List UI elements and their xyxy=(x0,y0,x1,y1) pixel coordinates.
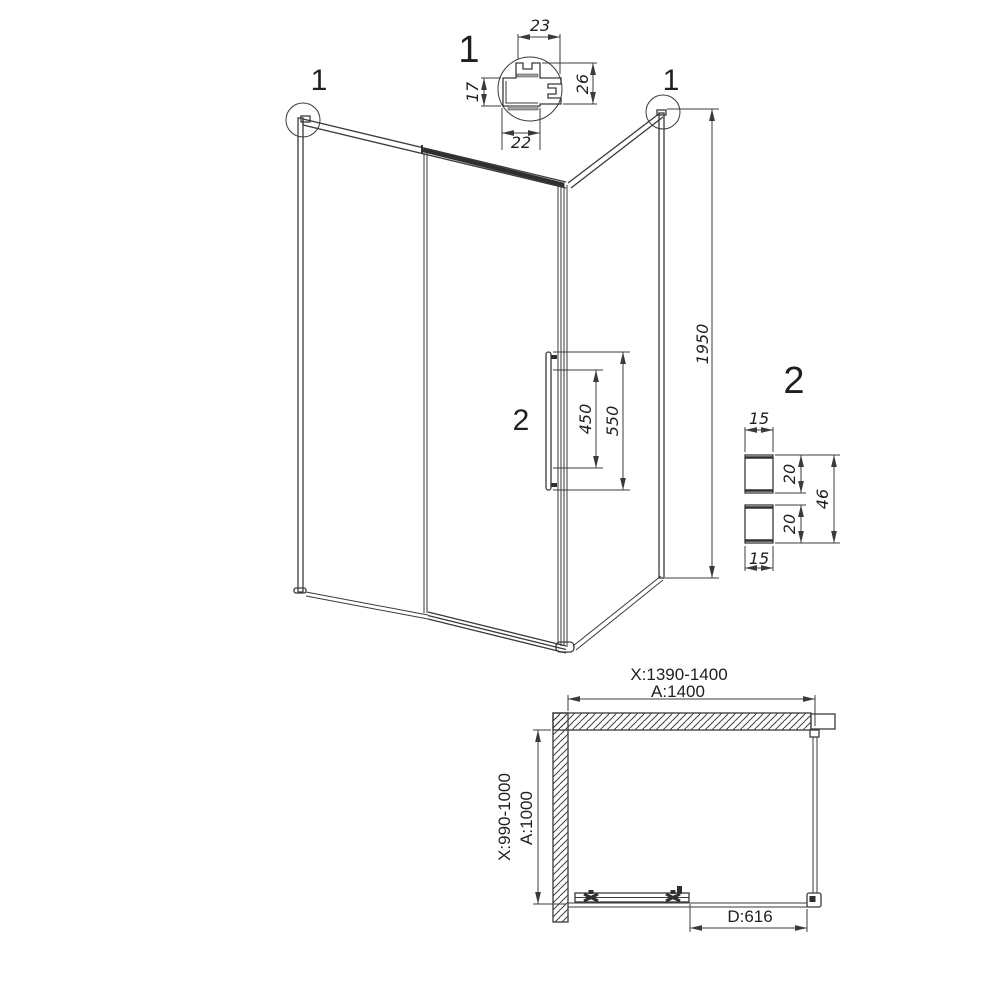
side-panel-top-rail xyxy=(568,113,663,188)
right-post xyxy=(659,113,664,578)
lower-wall-profile xyxy=(745,505,773,543)
fixed-panel-bottom-rail xyxy=(306,592,428,619)
left-wall xyxy=(553,713,568,922)
dimension-46: 46 xyxy=(813,455,834,543)
dimension-20-lower: 20 xyxy=(775,505,840,543)
dim-17-label: 17 xyxy=(463,81,482,102)
corner-connector xyxy=(807,893,821,907)
plan-depth-label: A:1000 xyxy=(517,791,536,845)
dimension-15-top: 15 xyxy=(745,409,773,452)
callout-label-handle: 2 xyxy=(513,404,530,437)
dimension-door-opening: D:616 xyxy=(690,904,807,932)
handle-mount-top xyxy=(551,355,557,359)
shower-enclosure-drawing: 1 1 2 450 550 1950 1 23 xyxy=(0,0,1000,1000)
dimension-20-upper: 20 xyxy=(775,455,840,493)
lower-profile-flanges xyxy=(745,508,773,541)
dim-1950-label: 1950 xyxy=(693,324,712,365)
detail1-callout: 1 xyxy=(458,29,479,71)
dim-46-label: 46 xyxy=(813,489,832,509)
upper-wall-profile xyxy=(745,455,773,493)
dim-550-label: 550 xyxy=(603,406,622,437)
callout-label-left: 1 xyxy=(311,64,328,97)
dimension-22: 22 xyxy=(502,108,540,152)
dim-450-label: 450 xyxy=(576,404,595,435)
plan-view: X:1390-1400 A:1400 X:990-1000 A:1000 D:6… xyxy=(495,665,835,932)
dim-15-bottom-label: 15 xyxy=(749,549,769,568)
handle-mount-bottom xyxy=(551,483,557,487)
plan-handle-knob xyxy=(677,886,682,894)
dimension-23: 23 xyxy=(518,16,560,74)
profile-inner-wall xyxy=(506,81,538,103)
side-panel-bottom-rail xyxy=(573,576,663,650)
plan-width-label: A:1400 xyxy=(651,682,705,701)
side-glass-top-bracket xyxy=(810,730,819,737)
corner-post-foot xyxy=(556,642,574,652)
gasket xyxy=(517,74,538,77)
door-top-track xyxy=(423,150,564,185)
door-handle xyxy=(546,352,551,490)
side-glass-panel xyxy=(813,737,817,893)
profile-section-outline xyxy=(503,63,561,106)
dim-20-lower-label: 20 xyxy=(780,514,799,534)
technical-drawing-page: 1 1 2 450 550 1950 1 23 xyxy=(0,0,1000,1000)
corner-post xyxy=(558,183,567,647)
dim-23-label: 23 xyxy=(530,16,550,35)
dim-15-top-label: 15 xyxy=(749,409,769,428)
callout-circle-right xyxy=(646,95,680,129)
dim-20-upper-label: 20 xyxy=(780,464,799,484)
dimension-15-bottom: 15 xyxy=(745,546,773,571)
detail-profile-view: 1 23 17 26 22 xyxy=(458,16,597,152)
door-bottom-track xyxy=(428,612,566,653)
door-roller-left xyxy=(584,890,598,901)
dimension-1950: 1950 xyxy=(665,109,719,578)
panel-divider xyxy=(424,153,427,613)
detail-wall-profiles-view: 2 15 20 20 46 15 xyxy=(745,360,840,571)
isometric-view: 1 1 2 450 550 1950 xyxy=(286,64,719,653)
left-post xyxy=(298,118,303,592)
detail2-callout: 2 xyxy=(783,360,804,402)
glass-edge xyxy=(508,106,538,110)
detail1-circle xyxy=(498,57,562,121)
dim-26-label: 26 xyxy=(573,74,592,94)
plan-depth-range-label: X:990-1000 xyxy=(495,773,514,861)
plan-door-label: D:616 xyxy=(727,907,772,926)
dim-22-label: 22 xyxy=(511,133,531,152)
top-wall xyxy=(553,713,811,730)
dimension-17: 17 xyxy=(463,78,501,106)
callout-label-right: 1 xyxy=(663,64,680,97)
front-track xyxy=(568,903,820,907)
upper-profile-flanges xyxy=(745,458,773,491)
